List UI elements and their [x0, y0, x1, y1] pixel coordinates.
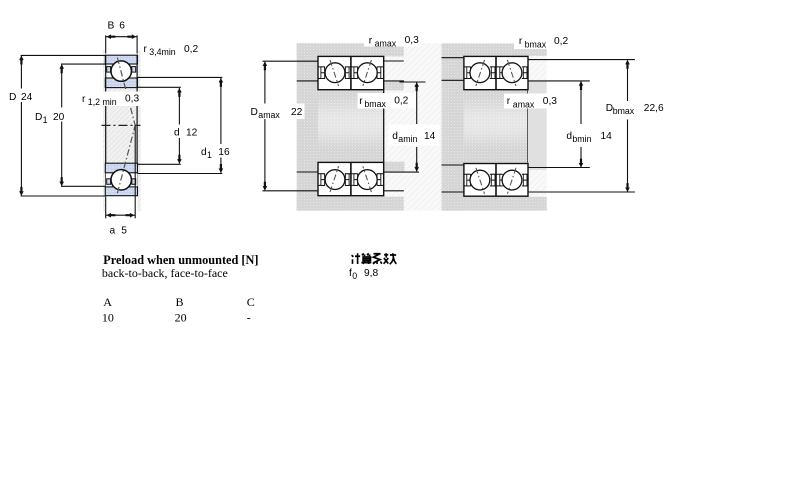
svg-text:20: 20 — [175, 311, 187, 325]
svg-text:r: r — [359, 96, 363, 107]
svg-text:C: C — [247, 295, 255, 309]
svg-text:amax: amax — [258, 110, 280, 120]
svg-text:bmax: bmax — [613, 106, 635, 116]
svg-text:12: 12 — [186, 128, 198, 139]
svg-text:B: B — [108, 21, 115, 32]
svg-text:1: 1 — [207, 150, 212, 160]
svg-text:amax: amax — [513, 99, 535, 109]
svg-text:0: 0 — [352, 271, 357, 281]
svg-text:-: - — [247, 311, 251, 325]
svg-text:1,2 min: 1,2 min — [88, 97, 117, 107]
svg-text:24: 24 — [21, 92, 33, 103]
svg-text:r: r — [144, 44, 148, 55]
svg-text:bmax: bmax — [525, 39, 547, 49]
svg-text:0,2: 0,2 — [554, 36, 568, 47]
svg-text:amin: amin — [398, 134, 417, 144]
svg-text:14: 14 — [424, 131, 436, 142]
svg-text:14: 14 — [601, 131, 613, 142]
svg-text:r: r — [82, 94, 86, 105]
svg-text:r: r — [369, 36, 373, 47]
svg-text:D: D — [9, 92, 16, 103]
svg-text:1: 1 — [43, 115, 48, 125]
svg-text:back-to-back, face-to-face: back-to-back, face-to-face — [102, 266, 228, 280]
svg-text:6: 6 — [119, 21, 125, 32]
svg-text:d: d — [174, 128, 180, 139]
svg-text:r: r — [519, 36, 523, 47]
svg-text:a: a — [110, 226, 116, 237]
svg-text:amax: amax — [375, 39, 397, 49]
svg-text:5: 5 — [121, 226, 127, 237]
svg-text:bmax: bmax — [364, 99, 386, 109]
svg-text:bmin: bmin — [572, 134, 591, 144]
svg-text:16: 16 — [218, 147, 230, 158]
svg-text:9,8: 9,8 — [364, 268, 378, 279]
svg-text:B: B — [176, 295, 184, 309]
svg-text:20: 20 — [53, 112, 65, 123]
svg-text:D: D — [35, 112, 42, 123]
svg-text:r: r — [507, 96, 511, 107]
svg-text:3,4min: 3,4min — [149, 47, 176, 57]
svg-text:0,3: 0,3 — [125, 94, 139, 105]
svg-text:A: A — [103, 295, 112, 309]
svg-text:0,3: 0,3 — [405, 35, 419, 46]
svg-text:0,2: 0,2 — [184, 44, 198, 55]
svg-text:0,2: 0,2 — [394, 96, 408, 107]
svg-text:0,3: 0,3 — [543, 96, 557, 107]
svg-text:22,6: 22,6 — [644, 103, 664, 114]
svg-text:Preload when unmounted [N]: Preload when unmounted [N] — [103, 253, 258, 267]
svg-text:10: 10 — [102, 311, 114, 325]
svg-text:D: D — [251, 107, 258, 118]
svg-text:22: 22 — [291, 107, 303, 118]
